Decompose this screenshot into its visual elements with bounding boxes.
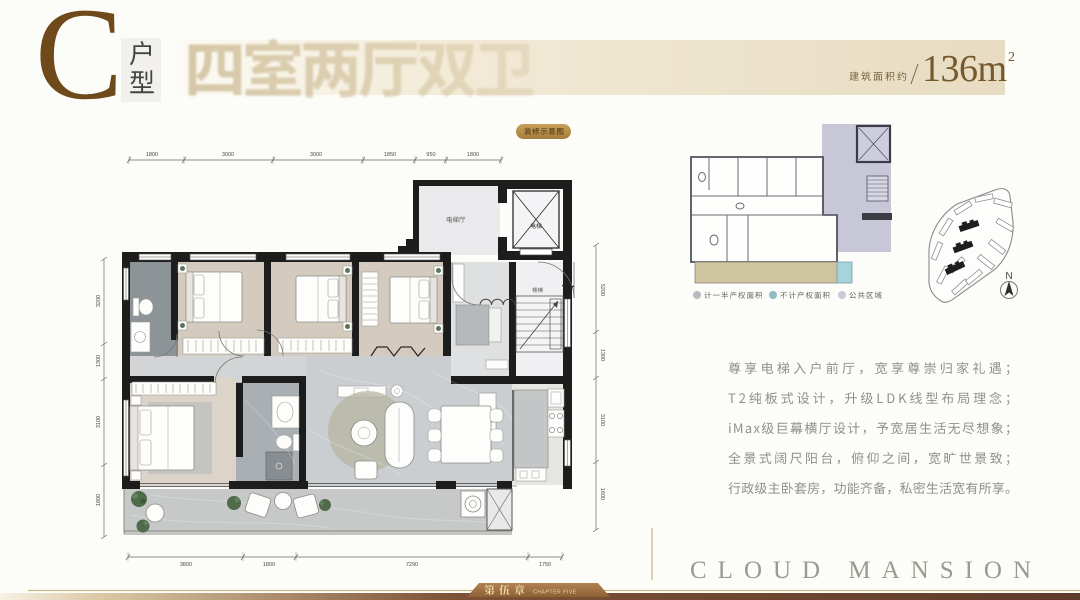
svg-text:1800: 1800 <box>467 152 479 158</box>
svg-text:CLOUD MANSION: CLOUD MANSION <box>690 557 1042 584</box>
svg-text:CHAPTER FIVE: CHAPTER FIVE <box>533 590 577 596</box>
svg-text:3100: 3100 <box>599 414 605 426</box>
svg-text:2: 2 <box>1008 50 1015 65</box>
svg-text:1850: 1850 <box>384 152 396 158</box>
svg-text:1300: 1300 <box>599 349 605 361</box>
svg-text:950: 950 <box>426 152 435 158</box>
svg-text:7290: 7290 <box>406 562 418 568</box>
svg-text:136m: 136m <box>922 48 1007 90</box>
svg-text:1800: 1800 <box>146 152 158 158</box>
svg-text:3200: 3200 <box>96 295 102 307</box>
svg-text:1750: 1750 <box>539 562 551 568</box>
svg-text:C: C <box>35 0 123 127</box>
svg-text:3000: 3000 <box>310 152 322 158</box>
svg-text:5200: 5200 <box>599 284 605 296</box>
svg-text:1600: 1600 <box>599 488 605 500</box>
svg-text:3000: 3000 <box>222 152 234 158</box>
svg-text:1800: 1800 <box>263 562 275 568</box>
svg-text:N: N <box>1005 271 1012 282</box>
svg-text:1300: 1300 <box>96 355 102 367</box>
svg-text:3800: 3800 <box>180 562 192 568</box>
svg-text:1800: 1800 <box>96 494 102 506</box>
svg-text:3100: 3100 <box>96 416 102 428</box>
